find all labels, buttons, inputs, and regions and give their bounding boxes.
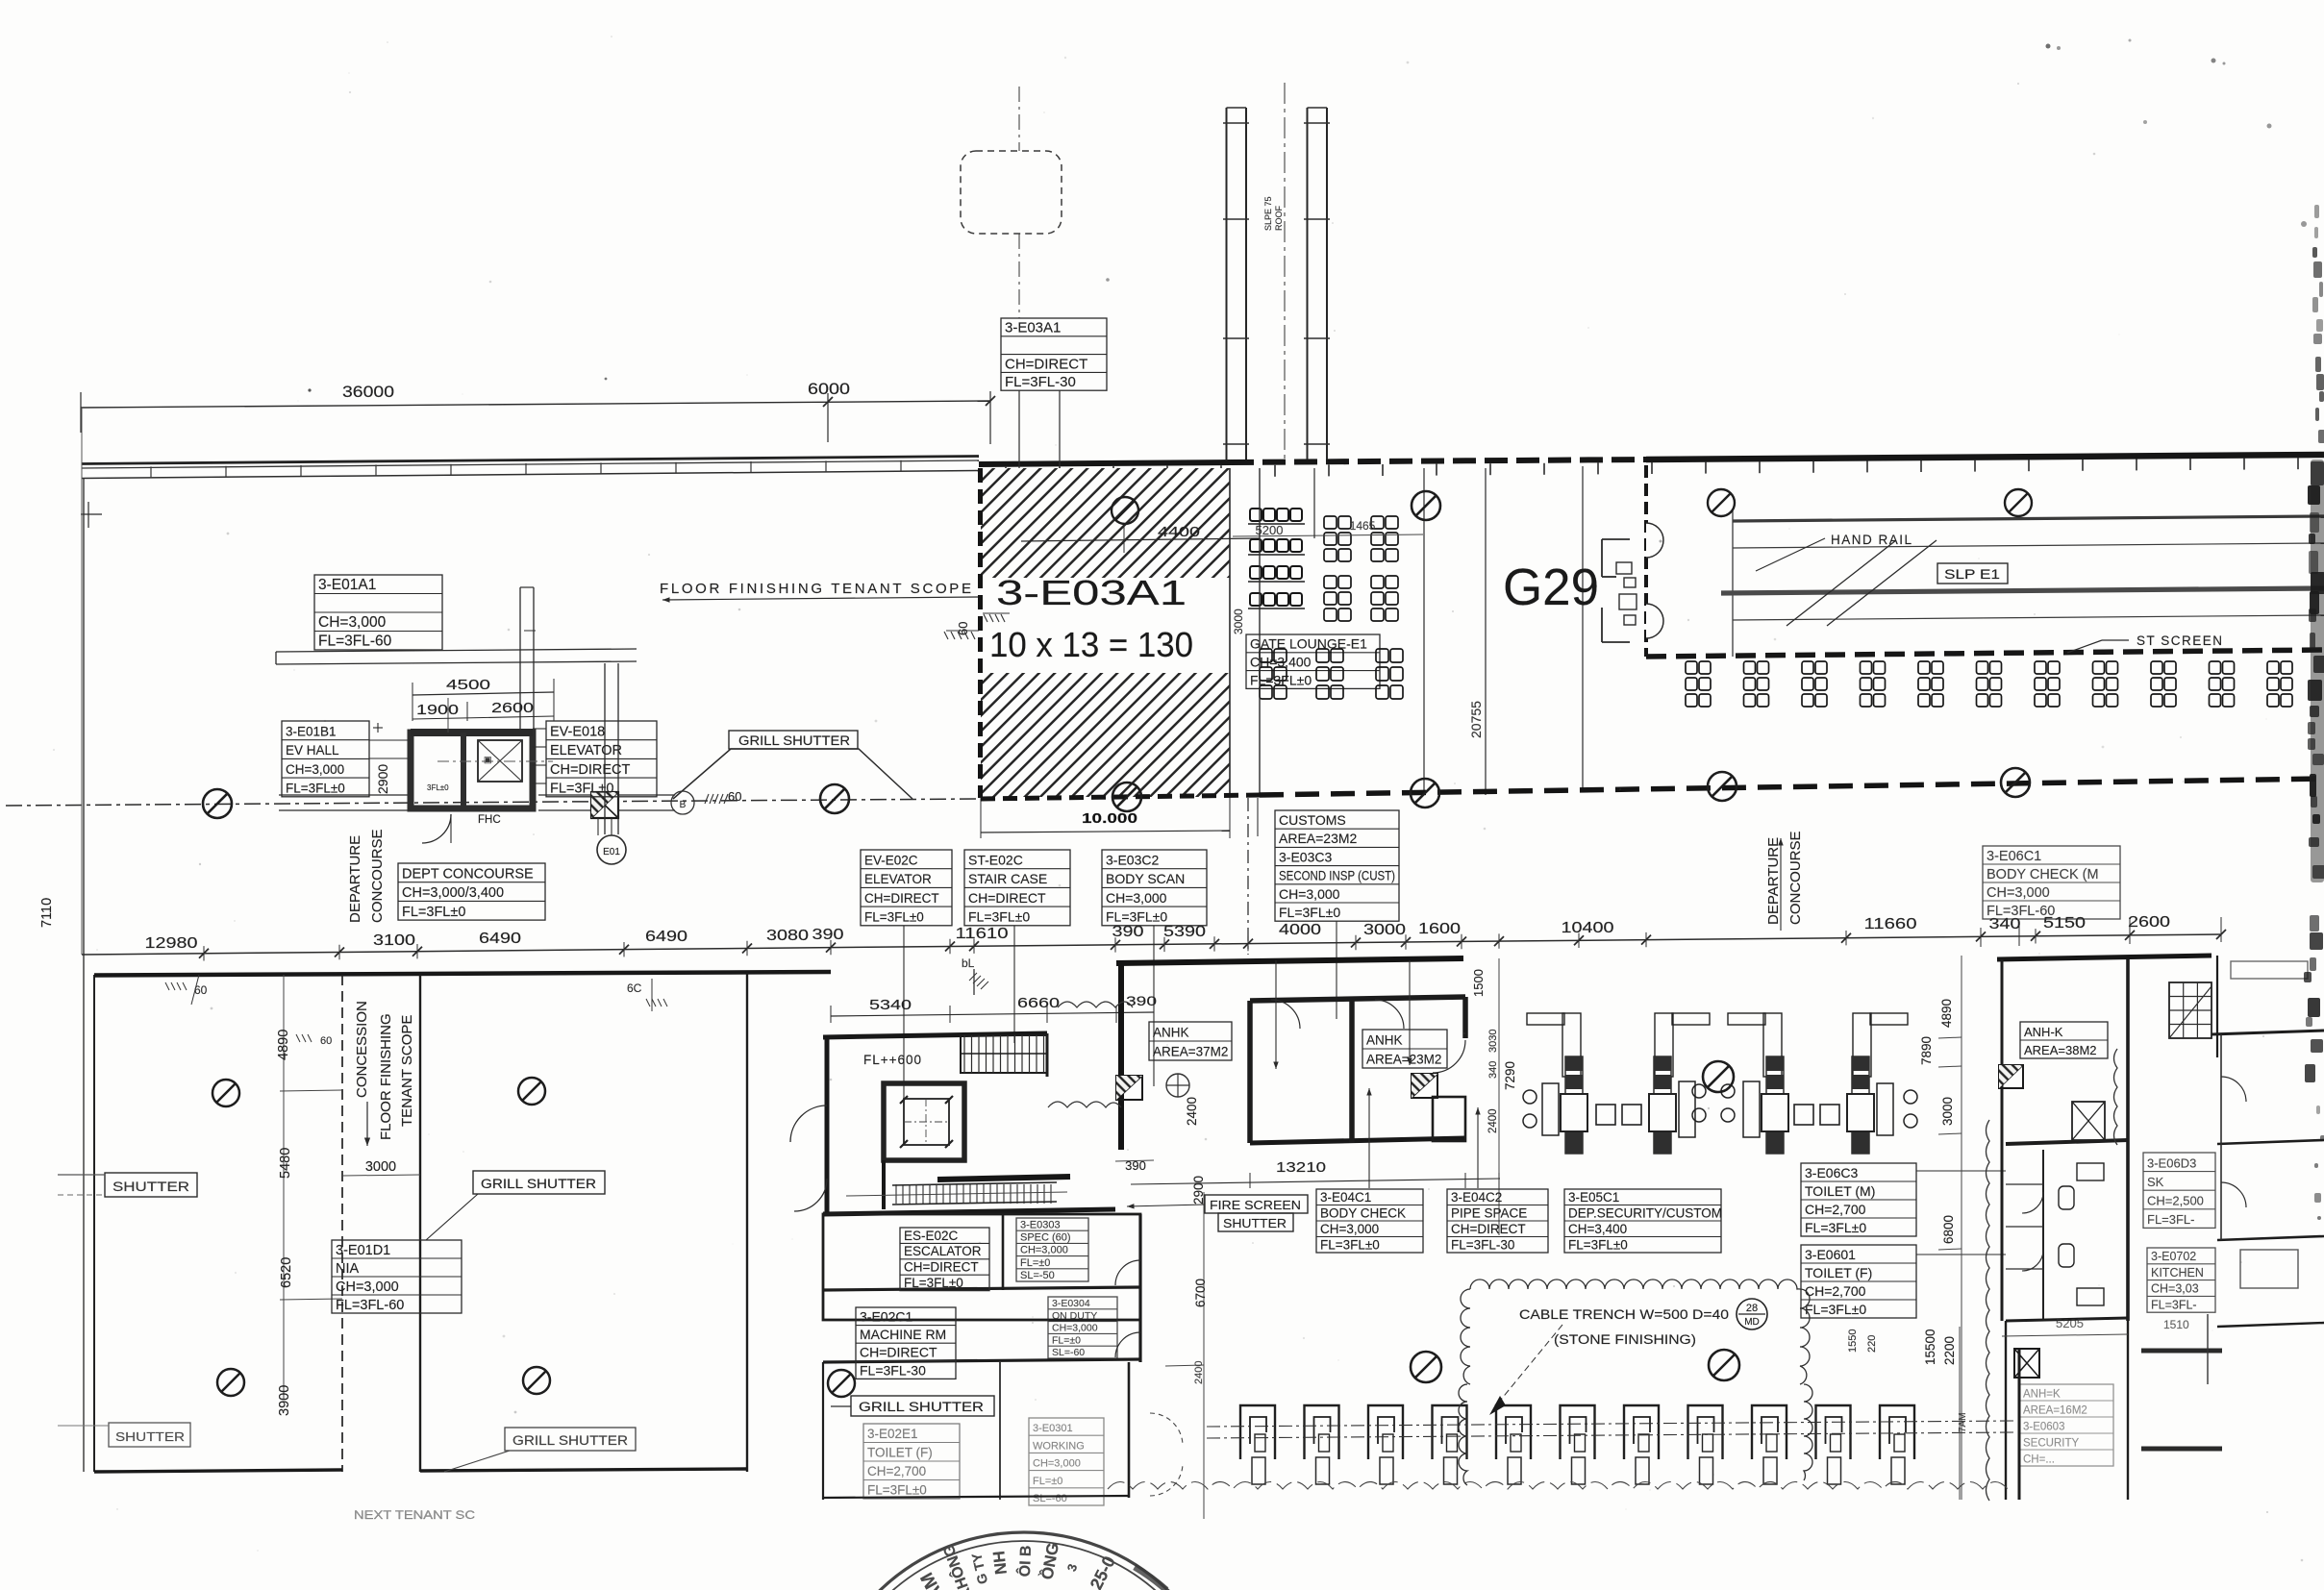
svg-text:3FL±0: 3FL±0 — [427, 783, 449, 792]
svg-text:6000: 6000 — [808, 380, 850, 398]
svg-text:(STONE FINISHING): (STONE FINISHING) — [1554, 1332, 1696, 1347]
svg-text:4500: 4500 — [446, 677, 490, 693]
svg-text:3-E03C2: 3-E03C2 — [1106, 852, 1159, 867]
svg-text:3-E02C1: 3-E02C1 — [860, 1309, 912, 1325]
svg-text:11660: 11660 — [1864, 916, 1917, 932]
svg-text:3-E0601: 3-E0601 — [1805, 1247, 1856, 1262]
svg-text:28: 28 — [1746, 1303, 1758, 1314]
svg-text:3000: 3000 — [1232, 609, 1245, 634]
svg-text:10 x 13 = 130: 10 x 13 = 130 — [989, 625, 1193, 664]
svg-text:10400: 10400 — [1562, 920, 1614, 936]
svg-text:3-E01D1: 3-E01D1 — [336, 1243, 390, 1258]
svg-text:SHUTTER: SHUTTER — [1223, 1216, 1287, 1230]
svg-text:3100: 3100 — [373, 932, 415, 949]
svg-text:ANHK: ANHK — [1366, 1033, 1403, 1048]
svg-text:BODY CHECK (M: BODY CHECK (M — [1987, 867, 2099, 882]
svg-text:4890: 4890 — [1939, 999, 1954, 1028]
svg-text:BODY CHECK: BODY CHECK — [1320, 1205, 1406, 1220]
svg-text:3-E0304: 3-E0304 — [1052, 1298, 1090, 1309]
svg-text:FL=3FL-60: FL=3FL-60 — [1987, 904, 2055, 919]
svg-text:FL=3FL±0: FL=3FL±0 — [1805, 1302, 1866, 1317]
svg-text:1600: 1600 — [1418, 921, 1461, 937]
svg-text:1550: 1550 — [1847, 1329, 1859, 1353]
svg-text:AREA=38M2: AREA=38M2 — [2024, 1043, 2097, 1057]
svg-text:TENANT SCOPE: TENANT SCOPE — [399, 1015, 415, 1127]
svg-text:FL=3FL-30: FL=3FL-30 — [1005, 374, 1076, 390]
svg-text:TOILET (F): TOILET (F) — [1805, 1265, 1872, 1280]
svg-text:3-E0702: 3-E0702 — [2151, 1250, 2196, 1263]
svg-text:EV-E02C: EV-E02C — [864, 853, 918, 867]
svg-text:20755: 20755 — [1468, 701, 1484, 738]
svg-text:7290: 7290 — [1503, 1061, 1517, 1090]
svg-text:TOILET (M): TOILET (M) — [1805, 1183, 1875, 1199]
svg-text:CABLE TRENCH W=500 D=40: CABLE TRENCH W=500 D=40 — [1519, 1306, 1729, 1322]
svg-text:EV-E018: EV-E018 — [550, 724, 605, 739]
svg-text:FL=3FL-60: FL=3FL-60 — [318, 634, 392, 650]
svg-text:CH=3,000: CH=3,000 — [1106, 890, 1167, 906]
svg-text:HAND RAIL: HAND RAIL — [1831, 533, 1913, 547]
svg-text:FL=±0: FL=±0 — [1033, 1476, 1062, 1487]
svg-text:6800: 6800 — [1941, 1215, 1956, 1244]
svg-text:FL=3FL±0: FL=3FL±0 — [968, 909, 1030, 925]
svg-text:1500: 1500 — [1471, 969, 1486, 997]
svg-text:3-E06C1: 3-E06C1 — [1987, 849, 2041, 864]
svg-text:3-E05C1: 3-E05C1 — [1568, 1190, 1619, 1205]
svg-text:AREA=23M2: AREA=23M2 — [1279, 831, 1358, 846]
svg-text:3030: 3030 — [1487, 1030, 1499, 1053]
svg-text:390: 390 — [1112, 924, 1144, 940]
svg-text:1510: 1510 — [2163, 1318, 2189, 1331]
svg-text:CH=3,000: CH=3,000 — [1052, 1323, 1098, 1334]
svg-text:FL=3FL-30: FL=3FL-30 — [1451, 1237, 1514, 1252]
svg-text:SL=-60: SL=-60 — [1033, 1493, 1067, 1504]
svg-text:5340: 5340 — [869, 997, 912, 1013]
svg-text:CH=DIRECT: CH=DIRECT — [968, 890, 1046, 906]
svg-text:MACHINE RM: MACHINE RM — [860, 1327, 946, 1342]
svg-text:SLP E1: SLP E1 — [1944, 566, 2000, 582]
svg-text:FL=3FL±0: FL=3FL±0 — [1279, 905, 1340, 920]
svg-text:CH=3,000: CH=3,000 — [1279, 886, 1340, 902]
svg-text:7890: 7890 — [1919, 1036, 1934, 1065]
svg-text:CH=DIRECT: CH=DIRECT — [904, 1260, 979, 1275]
svg-text:CH=3,000: CH=3,000 — [1987, 885, 2050, 901]
svg-text:CH=2,700: CH=2,700 — [1805, 1283, 1866, 1299]
svg-text:MD: MD — [1744, 1317, 1760, 1328]
svg-text:CONCESSION: CONCESSION — [354, 1001, 370, 1098]
svg-text:6660: 6660 — [1017, 995, 1060, 1011]
svg-text:6C: 6C — [627, 981, 642, 995]
svg-text:ANHK: ANHK — [1153, 1026, 1189, 1040]
svg-text:SECURITY: SECURITY — [2023, 1437, 2079, 1449]
svg-text:CH=3,000: CH=3,000 — [318, 614, 387, 631]
svg-text:ÔI B: ÔI B — [1015, 1545, 1035, 1578]
svg-text:FL=3FL-60: FL=3FL-60 — [336, 1298, 404, 1313]
svg-text:390: 390 — [1126, 993, 1157, 1008]
svg-text:15500: 15500 — [1923, 1329, 1937, 1365]
svg-text:ELEVATOR: ELEVATOR — [864, 872, 932, 886]
svg-text:3-E03A1: 3-E03A1 — [1005, 320, 1061, 336]
svg-text:ES-E02C: ES-E02C — [904, 1229, 959, 1243]
svg-text:NIA: NIA — [336, 1261, 360, 1277]
svg-text:CH=3,03: CH=3,03 — [2151, 1282, 2199, 1296]
svg-text:CH=DIRECT: CH=DIRECT — [864, 891, 939, 906]
svg-text:NEXT TENANT SC: NEXT TENANT SC — [354, 1508, 475, 1522]
svg-text:CH=3,000: CH=3,000 — [1020, 1245, 1068, 1256]
svg-text:G29: G29 — [1503, 559, 1599, 616]
svg-text:3-E01B1: 3-E01B1 — [286, 724, 337, 738]
svg-text:SL=-60: SL=-60 — [1052, 1347, 1085, 1358]
svg-text:6520: 6520 — [279, 1257, 294, 1288]
svg-text:3-E03A1: 3-E03A1 — [996, 573, 1187, 612]
svg-text:SLPE 75: SLPE 75 — [1263, 196, 1273, 231]
svg-text:6490: 6490 — [645, 929, 687, 945]
svg-text:390: 390 — [812, 927, 844, 943]
svg-text:NH: NH — [989, 1550, 1010, 1575]
svg-text:DEPARTURE: DEPARTURE — [347, 835, 363, 923]
svg-text:3-E0301: 3-E0301 — [1033, 1423, 1073, 1434]
svg-text:FL=±0: FL=±0 — [1020, 1257, 1050, 1269]
svg-text:FL=3FL±0: FL=3FL±0 — [402, 905, 465, 920]
svg-text:2200: 2200 — [1942, 1336, 1957, 1365]
svg-text:60: 60 — [728, 789, 741, 804]
svg-text:PIPE SPACE: PIPE SPACE — [1451, 1205, 1527, 1220]
svg-text:AREA=23M2: AREA=23M2 — [1366, 1053, 1441, 1067]
svg-text:TOILET (F): TOILET (F) — [867, 1446, 933, 1460]
svg-text:CH=2,700: CH=2,700 — [1805, 1202, 1866, 1217]
svg-text:FL=3FL±0: FL=3FL±0 — [904, 1276, 963, 1290]
svg-text:3-E01A1: 3-E01A1 — [318, 577, 376, 593]
svg-text:CH=DIRECT: CH=DIRECT — [1005, 356, 1087, 372]
svg-text:B: B — [680, 800, 687, 810]
svg-text:340: 340 — [1487, 1061, 1499, 1079]
svg-text:4000: 4000 — [1279, 922, 1321, 938]
svg-text:3-E0303: 3-E0303 — [1020, 1219, 1061, 1230]
svg-text:FHC: FHC — [478, 814, 501, 826]
svg-text:CH=3,400: CH=3,400 — [1568, 1222, 1627, 1236]
svg-text:1465: 1465 — [1350, 519, 1376, 533]
svg-text:EV HALL: EV HALL — [286, 743, 339, 758]
svg-text:ANH-K: ANH-K — [2024, 1025, 2063, 1039]
svg-text:ON DUTY: ON DUTY — [1052, 1310, 1097, 1322]
svg-text:2400: 2400 — [1185, 1097, 1199, 1126]
svg-text:ST SCREEN: ST SCREEN — [2137, 634, 2224, 648]
svg-text:2900: 2900 — [1191, 1176, 1206, 1205]
svg-text:5390: 5390 — [1163, 924, 1206, 940]
svg-text:3-E0603: 3-E0603 — [2023, 1421, 2064, 1432]
svg-text:FL=3FL-: FL=3FL- — [2147, 1212, 2195, 1227]
svg-text:10.000: 10.000 — [1082, 810, 1137, 827]
svg-text:5480: 5480 — [278, 1148, 293, 1179]
svg-text:12980: 12980 — [145, 935, 198, 952]
svg-text:SK: SK — [2147, 1175, 2164, 1189]
svg-text:BODY SCAN: BODY SCAN — [1106, 871, 1185, 886]
svg-text:6700: 6700 — [1193, 1279, 1208, 1307]
svg-text:GRILL SHUTTER: GRILL SHUTTER — [512, 1433, 628, 1448]
svg-text:FL=3FL±0: FL=3FL±0 — [1106, 909, 1167, 925]
svg-text:ROOF: ROOF — [1274, 205, 1284, 231]
svg-text:3-E06C3: 3-E06C3 — [1805, 1165, 1858, 1180]
svg-text:KITCHEN: KITCHEN — [2151, 1266, 2204, 1279]
svg-text:3000: 3000 — [365, 1159, 396, 1175]
svg-text:3-E02E1: 3-E02E1 — [867, 1427, 918, 1441]
svg-text:GRILL SHUTTER: GRILL SHUTTER — [859, 1400, 984, 1414]
svg-text:2900: 2900 — [375, 764, 390, 794]
svg-text:FLOOR FINISHING TENANT SCOPE: FLOOR FINISHING TENANT SCOPE — [660, 581, 971, 597]
svg-text:bL: bL — [962, 956, 975, 970]
svg-text:CONCOURSE: CONCOURSE — [369, 829, 386, 923]
svg-text:4890: 4890 — [276, 1030, 291, 1060]
svg-text:7AM: 7AM — [1958, 1412, 1968, 1432]
svg-text:CUSTOMS: CUSTOMS — [1279, 812, 1346, 828]
svg-text:CH=DIRECT: CH=DIRECT — [1451, 1222, 1526, 1236]
svg-text:SL=-50: SL=-50 — [1020, 1270, 1055, 1281]
svg-text:FL=3FL±0: FL=3FL±0 — [1320, 1237, 1380, 1252]
svg-text:7110: 7110 — [39, 898, 55, 928]
svg-text:CH=2,700: CH=2,700 — [867, 1464, 926, 1478]
svg-text:DEP.SECURITY/CUSTOM: DEP.SECURITY/CUSTOM — [1568, 1205, 1722, 1220]
svg-text:3080: 3080 — [766, 928, 809, 944]
svg-text:60: 60 — [956, 622, 970, 635]
svg-text:2600: 2600 — [2128, 914, 2170, 931]
svg-text:FL=3FL-: FL=3FL- — [2151, 1299, 2197, 1312]
svg-text:CH=...: CH=... — [2023, 1453, 2055, 1465]
svg-text:2600: 2600 — [491, 700, 534, 716]
svg-text:GRILL SHUTTER: GRILL SHUTTER — [481, 1177, 596, 1191]
svg-text:SHUTTER: SHUTTER — [115, 1429, 185, 1444]
svg-text:DEPT CONCOURSE: DEPT CONCOURSE — [402, 866, 534, 882]
svg-text:FL=3FL±0: FL=3FL±0 — [864, 910, 924, 925]
svg-text:60: 60 — [320, 1035, 332, 1047]
svg-text:13210: 13210 — [1276, 1159, 1326, 1176]
svg-text:5205: 5205 — [2056, 1316, 2084, 1330]
svg-text:1900: 1900 — [416, 702, 459, 718]
svg-text:FL=3FL±0: FL=3FL±0 — [286, 782, 345, 796]
svg-text:GRILL SHUTTER: GRILL SHUTTER — [738, 733, 850, 748]
svg-text:FL=±0: FL=±0 — [1052, 1334, 1081, 1346]
svg-text:2400: 2400 — [1193, 1361, 1205, 1384]
svg-text:CH=3,000: CH=3,000 — [336, 1279, 399, 1295]
svg-text:6490: 6490 — [479, 931, 521, 947]
svg-text:CH=3,000: CH=3,000 — [1320, 1222, 1379, 1236]
svg-text:AREA=16M2: AREA=16M2 — [2023, 1404, 2087, 1416]
svg-text:STAIR CASE: STAIR CASE — [968, 871, 1047, 886]
svg-text:CH=DIRECT: CH=DIRECT — [860, 1345, 937, 1360]
svg-text:4400: 4400 — [1158, 524, 1200, 540]
svg-text:CH=3,000: CH=3,000 — [1033, 1458, 1081, 1470]
svg-text:DEPARTURE: DEPARTURE — [1765, 837, 1782, 925]
svg-text:2400: 2400 — [1487, 1108, 1499, 1133]
svg-text:AREA=37M2: AREA=37M2 — [1153, 1045, 1228, 1059]
svg-text:WORKING: WORKING — [1033, 1440, 1085, 1452]
svg-text:▣: ▣ — [484, 755, 492, 764]
svg-text:11610: 11610 — [956, 926, 1009, 942]
svg-text:ANH=K: ANH=K — [2023, 1388, 2061, 1400]
svg-text:3000: 3000 — [1363, 922, 1406, 938]
svg-text:CH=3,000: CH=3,000 — [286, 762, 344, 777]
svg-text:ST-E02C: ST-E02C — [968, 852, 1023, 867]
svg-text:FL=3FL±0: FL=3FL±0 — [867, 1483, 927, 1498]
svg-text:CH=2,500: CH=2,500 — [2147, 1194, 2204, 1208]
svg-text:36000: 36000 — [342, 383, 394, 401]
svg-text:ELEVATOR: ELEVATOR — [550, 743, 622, 758]
svg-text:ESCALATOR: ESCALATOR — [904, 1244, 982, 1258]
svg-text:SPEC (60): SPEC (60) — [1020, 1232, 1071, 1244]
svg-text:FL++600: FL++600 — [863, 1053, 922, 1067]
svg-text:FIRE SCREEN: FIRE SCREEN — [1210, 1198, 1301, 1212]
svg-text:3900: 3900 — [277, 1385, 292, 1416]
svg-text:SHUTTER: SHUTTER — [112, 1180, 189, 1194]
svg-text:SECOND INSP (CUST): SECOND INSP (CUST) — [1279, 868, 1395, 883]
svg-text:220: 220 — [1866, 1335, 1878, 1353]
svg-text:3-E03C3: 3-E03C3 — [1279, 849, 1332, 864]
svg-text:E01: E01 — [603, 847, 620, 857]
svg-text:FLOOR FINISHING: FLOOR FINISHING — [378, 1013, 394, 1140]
svg-text:FL=3FL±0: FL=3FL±0 — [1805, 1220, 1866, 1235]
svg-text:FL=3FL-30: FL=3FL-30 — [860, 1362, 926, 1378]
svg-text:3-E04C2: 3-E04C2 — [1451, 1190, 1502, 1205]
svg-text:3-E06D3: 3-E06D3 — [2147, 1155, 2196, 1170]
svg-text:3000: 3000 — [1940, 1097, 1955, 1126]
svg-text:CONCOURSE: CONCOURSE — [1787, 831, 1804, 925]
svg-text:FL=3FL±0: FL=3FL±0 — [1568, 1237, 1628, 1252]
svg-text:CH=3,000/3,400: CH=3,000/3,400 — [402, 885, 504, 901]
svg-text:3-E04C1: 3-E04C1 — [1320, 1190, 1371, 1205]
